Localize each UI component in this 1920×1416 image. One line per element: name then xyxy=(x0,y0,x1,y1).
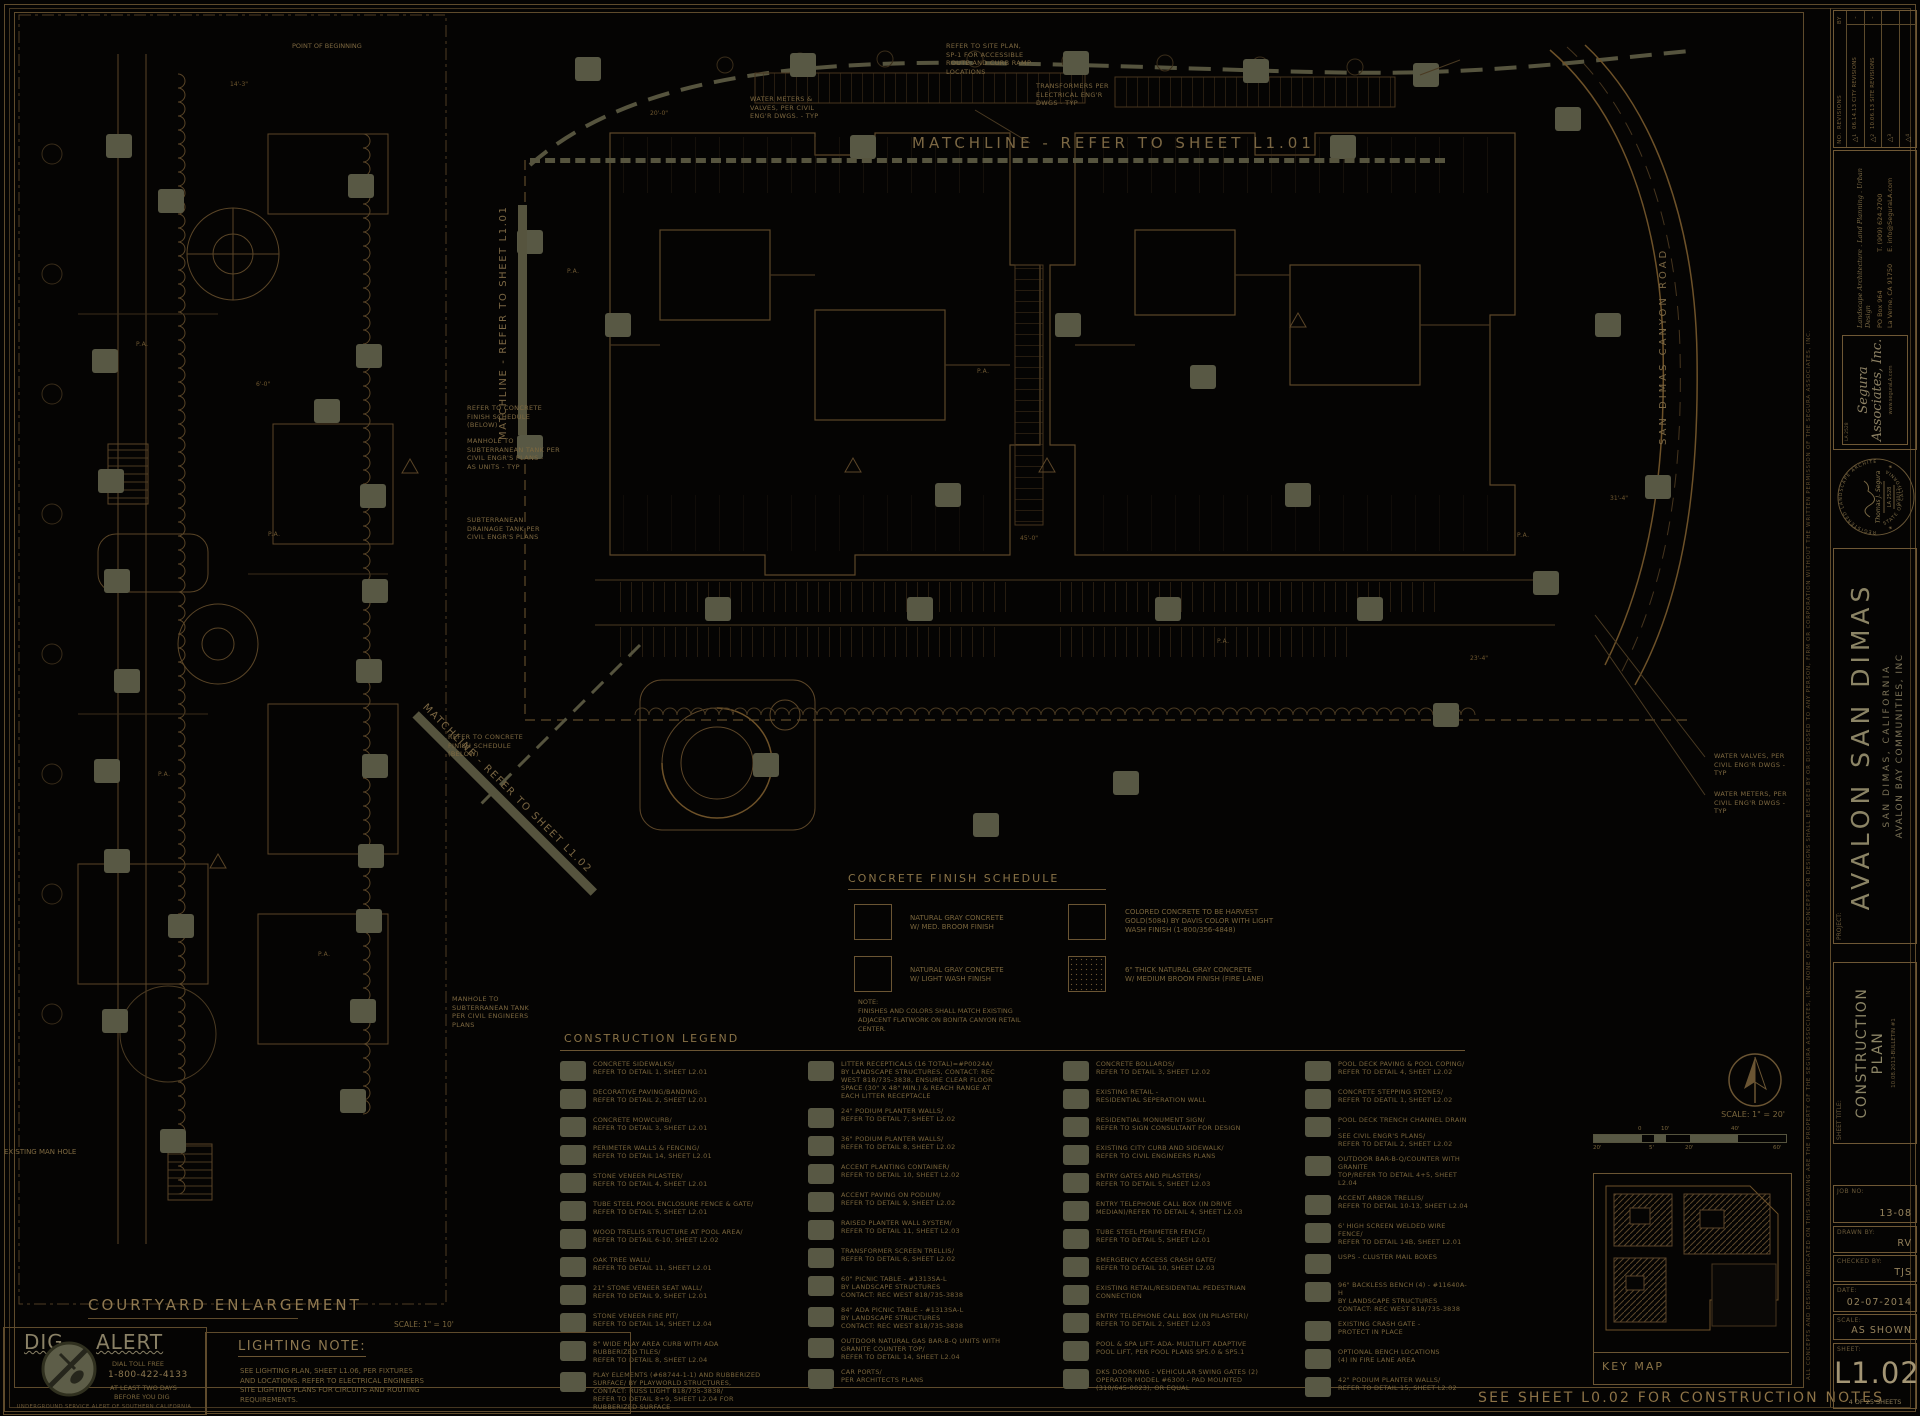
project-client: AVALON BAY COMMUNITIES, INC xyxy=(1895,654,1905,839)
firm-city: La Verne, CA 91750 xyxy=(1886,264,1894,328)
legend-item: OUTDOOR BAR-B-Q/COUNTER WITH GRANITE TOP… xyxy=(1305,1155,1470,1187)
legend-item-text: USPS - CLUSTER MAIL BOXES xyxy=(1338,1253,1437,1261)
keymap-scale-label: SCALE: 1" = 20' xyxy=(1655,1110,1785,1119)
courtyard-title: COURTYARD ENLARGEMENT xyxy=(88,1296,362,1314)
legend-item-text: 42" PODIUM PLANTER WALLS/ REFER TO DETAI… xyxy=(1338,1376,1457,1392)
legend-column-2: LITTER RECEPTICALS (16 TOTAL)=#P0024A/ B… xyxy=(808,1060,1058,1389)
sheet-title-label: SHEET TITLE: xyxy=(1836,1100,1843,1140)
legend-item: 21" STONE VENEER SEAT WALL/ REFER TO DET… xyxy=(560,1284,804,1305)
legend-item: STONE VENEER PILASTER/ REFER TO DETAIL 4… xyxy=(560,1172,804,1193)
firm-name: Segura Associates, Inc. xyxy=(1857,336,1885,444)
legend-item-text: EMERGENCY ACCESS CRASH GATE/ REFER TO DE… xyxy=(1096,1256,1216,1272)
annotation-water-meters-right: WATER METERS, PER CIVIL ENG'R DWGS - TYP xyxy=(1714,790,1787,816)
project-city: SAN DIMAS, CALIFORNIA xyxy=(1882,664,1892,827)
legend-swatch xyxy=(560,1089,586,1109)
legend-item-text: EXISTING RETAIL/RESIDENTIAL PEDESTRIAN C… xyxy=(1096,1284,1246,1300)
legend-swatch xyxy=(808,1307,834,1327)
annotation-subterranean-tank: SUBTERRANEAN DRAINAGE TANK PER CIVIL ENG… xyxy=(467,516,540,542)
annotation-water-meters-valves: WATER METERS & VALVES, PER CIVIL ENG'R D… xyxy=(750,95,818,121)
drawn-by-box: DRAWN BY: RV xyxy=(1833,1226,1917,1253)
finish-item: 6" THICK NATURAL GRAY CONCRETE W/ MEDIUM… xyxy=(1125,966,1264,984)
dimension-label: 14'-3" xyxy=(230,81,248,88)
legend-item: POOL DECK PAVING & POOL COPING/ REFER TO… xyxy=(1305,1060,1470,1081)
legend-item-text: TUBE STEEL PERIMETER FENCE/ REFER TO DET… xyxy=(1096,1228,1210,1244)
legend-swatch xyxy=(808,1369,834,1389)
legend-item: ACCENT ARBOR TRELLIS/ REFER TO DETAIL 10… xyxy=(1305,1194,1470,1215)
legend-item: OUTDOOR NATURAL GAS BAR-B-Q UNITS WITH G… xyxy=(808,1337,1058,1361)
revision-text: 06.14.13 CITY REVISIONS xyxy=(1852,25,1858,129)
legend-swatch xyxy=(1063,1285,1089,1305)
legend-item: EXISTING RETAIL/RESIDENTIAL PEDESTRIAN C… xyxy=(1063,1284,1301,1305)
date-box: DATE: 02-07-2014 xyxy=(1833,1284,1917,1312)
legend-item: 84" ADA PICNIC TABLE - #1313SA-L BY LAND… xyxy=(808,1306,1058,1330)
checked-by-value: TJS xyxy=(1894,1267,1912,1278)
revision-delta-icon: △ xyxy=(1851,137,1859,142)
legend-item: 60" PICNIC TABLE - #1313SA-L BY LANDSCAP… xyxy=(808,1275,1058,1299)
legend-item: ENTRY GATES AND PILASTERS/ REFER TO DETA… xyxy=(1063,1172,1301,1193)
firm-block: LA 2528 Segura Associates, Inc. www.segu… xyxy=(1833,150,1917,450)
legend-item-text: ACCENT PAVING ON PODIUM/ REFER TO DETAIL… xyxy=(841,1191,955,1207)
legend-item: POOL & SPA LIFT- ADA- MULTILIFT ADAPTIVE… xyxy=(1063,1340,1301,1361)
revision-delta-icon: △ xyxy=(1886,137,1894,142)
legend-swatch xyxy=(1305,1195,1331,1215)
legend-swatch xyxy=(1063,1145,1089,1165)
scale-bar-tick: 5' xyxy=(1649,1145,1654,1151)
legend-swatch xyxy=(808,1164,834,1184)
sheet-count: 4 OF 25 SHEETS xyxy=(1834,1398,1916,1406)
drawn-by-value: RV xyxy=(1897,1238,1912,1249)
legend-item: CONCRETE STEPPING STONES/ REFER TO DEATI… xyxy=(1305,1088,1470,1109)
sheet-number-label: SHEET: xyxy=(1837,1346,1861,1353)
legend-swatch xyxy=(1063,1201,1089,1221)
schedule-note: NOTE: FINISHES AND COLORS SHALL MATCH EX… xyxy=(858,998,1021,1034)
stamp-star-icon: ★ xyxy=(1888,464,1894,469)
revision-by xyxy=(1882,11,1899,25)
existing-manhole-label: EXISTING MAN HOLE xyxy=(4,1148,76,1156)
legend-item: 36" PODIUM PLANTER WALLS/ REFER TO DETAI… xyxy=(808,1135,1058,1156)
dig-alert-line1: DIAL TOLL FREE xyxy=(112,1360,164,1369)
stamp-date: 9/30/13 xyxy=(1896,488,1902,506)
legend-swatch xyxy=(1305,1321,1331,1341)
legend-swatch xyxy=(808,1248,834,1268)
project-block: PROJECT: AVALON SAN DIMAS SAN DIMAS, CAL… xyxy=(1833,548,1917,944)
lighting-note-box: LIGHTING NOTE: SEE LIGHTING PLAN, SHEET … xyxy=(205,1332,631,1414)
scale-bar-tick: 40' xyxy=(1731,1126,1740,1132)
job-number-value: 13-08 xyxy=(1879,1208,1912,1219)
legend-item-text: EXISTING CITY CURB AND SIDEWALK/ REFER T… xyxy=(1096,1144,1224,1160)
legend-item: OAK TREE WALL/ REFER TO DETAIL 11, SHEET… xyxy=(560,1256,804,1277)
legend-item-text: PERIMETER WALLS & FENCING/ REFER TO DETA… xyxy=(593,1144,712,1160)
legend-item-text: CONCRETE STEPPING STONES/ REFER TO DEATI… xyxy=(1338,1088,1452,1104)
dig-alert-word-alert: ALERT xyxy=(96,1330,163,1354)
key-map-box: KEY MAP xyxy=(1593,1173,1792,1385)
legend-swatch xyxy=(1305,1156,1331,1176)
legend-item: TUBE STEEL PERIMETER FENCE/ REFER TO DET… xyxy=(1063,1228,1301,1249)
dimension-label: 20'-0" xyxy=(650,110,668,117)
legend-item-text: CONCRETE MOWCURB/ REFER TO DETAIL 3, SHE… xyxy=(593,1116,707,1132)
annotation-accessible-route: REFER TO SITE PLAN, SP-1 FOR ACCESSIBLE … xyxy=(946,42,1031,76)
legend-item-text: POOL & SPA LIFT- ADA- MULTILIFT ADAPTIVE… xyxy=(1096,1340,1246,1356)
legend-item: 42" PODIUM PLANTER WALLS/ REFER TO DETAI… xyxy=(1305,1376,1470,1397)
north-arrow-icon xyxy=(1726,1051,1784,1109)
planting-area-label: P.A. xyxy=(136,341,149,348)
construction-legend: CONSTRUCTION LEGEND CONCRETE SIDEWALKS/ … xyxy=(560,1032,1468,1404)
date-value: 02-07-2014 xyxy=(1847,1297,1912,1308)
copyright-disclaimer: ALL CONCEPTS AND DESIGNS INDICATED ON TH… xyxy=(1806,150,1812,1380)
stamp-top-text: REGISTERED LANDSCAPE ARCHITECT xyxy=(1834,459,1877,539)
legend-swatch xyxy=(1305,1349,1331,1369)
legend-swatch xyxy=(560,1173,586,1193)
legend-swatch xyxy=(1063,1173,1089,1193)
scale-bar-tick: 0 xyxy=(1638,1126,1642,1132)
legend-item: PERIMETER WALLS & FENCING/ REFER TO DETA… xyxy=(560,1144,804,1165)
courtyard-scale: SCALE: 1" = 10' xyxy=(394,1320,454,1329)
legend-item: EXISTING CITY CURB AND SIDEWALK/ REFER T… xyxy=(1063,1144,1301,1165)
project-label: PROJECT: xyxy=(1836,913,1843,940)
legend-swatch xyxy=(1305,1282,1331,1302)
legend-item: CONCRETE SIDEWALKS/ REFER TO DETAIL 1, S… xyxy=(560,1060,804,1081)
revision-number: 3 xyxy=(1888,134,1893,137)
finish-item: NATURAL GRAY CONCRETE W/ LIGHT WASH FINI… xyxy=(910,966,1004,984)
stamp-star-icon: ★ xyxy=(1888,525,1894,530)
legend-swatch xyxy=(808,1136,834,1156)
firm-license-number: LA 2528 xyxy=(1845,422,1850,441)
legend-item-text: 96" BACKLESS BENCH (4) - #11640A-H BY LA… xyxy=(1338,1281,1470,1313)
dimension-label: 23'-4" xyxy=(1470,655,1488,662)
legend-item: USPS - CLUSTER MAIL BOXES xyxy=(1305,1253,1470,1274)
scale-label: SCALE: xyxy=(1837,1317,1861,1324)
revision-row: △4 xyxy=(1899,11,1917,147)
firm-address: PO Box 964 xyxy=(1876,264,1884,328)
planting-area-label: P.A. xyxy=(268,531,281,538)
scale-bar-tick: 60' xyxy=(1773,1145,1782,1151)
dimension-label: 45'-0" xyxy=(1020,535,1038,542)
revision-by: - xyxy=(1847,11,1864,25)
legend-column-4: POOL DECK PAVING & POOL COPING/ REFER TO… xyxy=(1305,1060,1470,1397)
dig-alert-phone: 1-800-422-4133 xyxy=(108,1370,188,1381)
legend-item-text: CONCRETE BOLLARDS/ REFER TO DETAIL 3, SH… xyxy=(1096,1060,1210,1076)
legend-swatch xyxy=(560,1201,586,1221)
dimension-label: 31'-4" xyxy=(1610,495,1628,502)
legend-item-text: ENTRY GATES AND PILASTERS/ REFER TO DETA… xyxy=(1096,1172,1210,1188)
planting-area-label: P.A. xyxy=(567,268,580,275)
legend-swatch xyxy=(808,1061,834,1081)
legend-item-text: 24" PODIUM PLANTER WALLS/ REFER TO DETAI… xyxy=(841,1107,955,1123)
legend-item-text: 84" ADA PICNIC TABLE - #1313SA-L BY LAND… xyxy=(841,1306,963,1330)
legend-item: WOOD TRELLIS STRUCTURE AT POOL AREA/ REF… xyxy=(560,1228,804,1249)
stamp-architect-name: Thomas J. Segura xyxy=(1875,470,1882,523)
scale-bar: 0 10' 40' 20' 5' 20' 60' xyxy=(1593,1126,1785,1154)
legend-item-text: CAR PORTS/ PER ARCHITECTS PLANS xyxy=(841,1368,924,1384)
legend-swatch xyxy=(1305,1223,1331,1243)
legend-item-text: EXISTING CRASH GATE - PROTECT IN PLACE xyxy=(1338,1320,1420,1336)
scale-bar-blocks xyxy=(1593,1134,1787,1143)
lighting-note-title: LIGHTING NOTE: xyxy=(238,1339,366,1357)
scale-box: SCALE: AS SHOWN xyxy=(1833,1314,1917,1340)
legend-swatch xyxy=(560,1257,586,1277)
annotation-transformers: TRANSFORMERS PER ELECTRICAL ENG'R DWGS -… xyxy=(1036,82,1109,108)
legend-swatch xyxy=(1063,1229,1089,1249)
legend-item: LITTER RECEPTICALS (16 TOTAL)=#P0024A/ B… xyxy=(808,1060,1058,1100)
legend-item-text: DECORATIVE PAVING/BANDING: REFER TO DETA… xyxy=(593,1088,707,1104)
legend-item-text: 21" STONE VENEER SEAT WALL/ REFER TO DET… xyxy=(593,1284,707,1300)
revision-by: - xyxy=(1865,11,1882,25)
courtyard-enlargement-panel: P.A. P.A. P.A. P.A. 14'-3" 6'-0" xyxy=(18,14,448,1306)
legend-item-text: 60" PICNIC TABLE - #1313SA-L BY LANDSCAP… xyxy=(841,1275,963,1299)
job-number-label: JOB NO: xyxy=(1837,1188,1864,1195)
matchline-top-dash xyxy=(530,158,1445,163)
dimension-label: 6'-0" xyxy=(256,381,270,388)
lighting-note-body: SEE LIGHTING PLAN, SHEET L1.06, PER FIXT… xyxy=(240,1367,424,1405)
dig-alert-line3: BEFORE YOU DIG xyxy=(114,1393,170,1402)
revisions-col-title: REVISIONS xyxy=(1837,24,1843,129)
date-label: DATE: xyxy=(1837,1287,1857,1294)
legend-item: CAR PORTS/ PER ARCHITECTS PLANS xyxy=(808,1368,1058,1389)
legend-item-text: POOL DECK TRENCH CHANNEL DRAIN - SEE CIV… xyxy=(1338,1116,1470,1148)
planting-area-label: P.A. xyxy=(318,951,331,958)
sheet-number: L1.02 xyxy=(1834,1356,1916,1390)
job-number-box: JOB NO: 13-08 xyxy=(1833,1185,1917,1223)
legend-swatch xyxy=(1305,1061,1331,1081)
bottom-reference-note: SEE SHEET L0.02 FOR CONSTRUCTION NOTES xyxy=(1478,1390,1884,1406)
legend-item: ENTRY TELEPHONE CALL BOX (IN PILASTER)/ … xyxy=(1063,1312,1301,1333)
scale-bar-tick: 20' xyxy=(1685,1145,1694,1151)
legend-item: ENTRY TELEPHONE CALL BOX (IN DRIVE MEDIA… xyxy=(1063,1200,1301,1221)
key-map-drawing xyxy=(1600,1180,1785,1340)
planting-area-label: P.A. xyxy=(1217,638,1230,645)
sheet-title-block: SHEET TITLE: CONSTRUCTION PLAN 10.08.201… xyxy=(1833,962,1917,1144)
legend-item-text: OPTIONAL BENCH LOCATIONS (4) IN FIRE LAN… xyxy=(1338,1348,1440,1364)
keymap-label: KEY MAP xyxy=(1602,1360,1664,1373)
legend-swatch xyxy=(808,1220,834,1240)
legend-item-text: CONCRETE SIDEWALKS/ REFER TO DETAIL 1, S… xyxy=(593,1060,707,1076)
legend-swatch xyxy=(1063,1313,1089,1333)
legend-column-3: CONCRETE BOLLARDS/ REFER TO DETAIL 3, SH… xyxy=(1063,1060,1301,1392)
scale-bar-tick: 20' xyxy=(1593,1145,1602,1151)
legend-swatch xyxy=(1305,1089,1331,1109)
legend-item: CONCRETE MOWCURB/ REFER TO DETAIL 3, SHE… xyxy=(560,1116,804,1137)
revision-text: 10.06.13 SITE REVISIONS xyxy=(1870,25,1876,129)
legend-item: 96" BACKLESS BENCH (4) - #11640A-H BY LA… xyxy=(1305,1281,1470,1313)
annotation-manhole-lower: MANHOLE TO SUBTERRANEAN TANK PER CIVIL E… xyxy=(452,995,529,1029)
legend-item-text: EXISTING RETAIL - RESIDENTIAL SEPERATION… xyxy=(1096,1088,1206,1104)
legend-item: 24" PODIUM PLANTER WALLS/ REFER TO DETAI… xyxy=(808,1107,1058,1128)
legend-item: EXISTING CRASH GATE - PROTECT IN PLACE xyxy=(1305,1320,1470,1341)
legend-item-text: ENTRY TELEPHONE CALL BOX (IN DRIVE MEDIA… xyxy=(1096,1200,1243,1216)
titleblock-divider xyxy=(1830,8,1831,1407)
legend-item-text: ACCENT PLANTING CONTAINER/ REFER TO DETA… xyxy=(841,1163,960,1179)
matchline-top-label: MATCHLINE - REFER TO SHEET L1.01 xyxy=(912,134,1315,152)
legend-swatch xyxy=(560,1145,586,1165)
legend-item: DECORATIVE PAVING/BANDING: REFER TO DETA… xyxy=(560,1088,804,1109)
legend-item: EMERGENCY ACCESS CRASH GATE/ REFER TO DE… xyxy=(1063,1256,1301,1277)
finish-swatch-colored xyxy=(1068,904,1106,940)
legend-item-text: POOL DECK PAVING & POOL COPING/ REFER TO… xyxy=(1338,1060,1464,1076)
courtyard-plan-drawing: P.A. P.A. P.A. P.A. 14'-3" 6'-0" xyxy=(18,14,448,1306)
stamp-license: LA 2528 xyxy=(1887,487,1893,508)
legend-item-text: OUTDOOR NATURAL GAS BAR-B-Q UNITS WITH G… xyxy=(841,1337,1000,1361)
legend-swatch xyxy=(560,1061,586,1081)
legend-item-text: STONE VENEER PILASTER/ REFER TO DETAIL 4… xyxy=(593,1172,707,1188)
legend-item-text: STONE VENEER FIRE PIT/ REFER TO DETAIL 1… xyxy=(593,1312,712,1328)
legend-item: ACCENT PAVING ON PODIUM/ REFER TO DETAIL… xyxy=(808,1191,1058,1212)
firm-email: E. info@SeguraLA.com xyxy=(1886,178,1894,252)
legend-swatch xyxy=(1063,1117,1089,1137)
sheet-title-line1: CONSTRUCTION xyxy=(1854,988,1870,1119)
legend-swatch xyxy=(808,1338,834,1358)
legend-swatch xyxy=(560,1313,586,1333)
legend-item-text: 36" PODIUM PLANTER WALLS/ REFER TO DETAI… xyxy=(841,1135,955,1151)
concrete-finish-schedule: CONCRETE FINISH SCHEDULE NATURAL GRAY CO… xyxy=(848,872,1478,1042)
finish-swatch-broom xyxy=(854,904,892,940)
revision-number: 2 xyxy=(1871,134,1876,137)
firm-tagline: Landscape Architecture . Land Planning .… xyxy=(1856,155,1872,328)
dig-alert-line2: AT LEAST TWO DAYS xyxy=(110,1384,177,1393)
revision-row: △2 10.06.13 SITE REVISIONS - xyxy=(1864,11,1882,147)
legend-item-text: RAISED PLANTER WALL SYSTEM/ REFER TO DET… xyxy=(841,1219,960,1235)
legend-item: RESIDENTIAL MONUMENT SIGN/ REFER TO SIGN… xyxy=(1063,1116,1301,1137)
legend-swatch xyxy=(808,1192,834,1212)
legend-item: ACCENT PLANTING CONTAINER/ REFER TO DETA… xyxy=(808,1163,1058,1184)
scale-value: AS SHOWN xyxy=(1851,1325,1912,1336)
legend-swatch xyxy=(1305,1377,1331,1397)
road-name-label: SAN DIMAS CANYON ROAD xyxy=(1658,245,1669,445)
legend-title: CONSTRUCTION LEGEND xyxy=(564,1032,739,1045)
project-name: AVALON SAN DIMAS xyxy=(1846,582,1875,911)
legend-item-text: WOOD TRELLIS STRUCTURE AT POOL AREA/ REF… xyxy=(593,1228,743,1244)
legend-item-text: DKS DOORKING - VEHICULAR SWING GATES (2)… xyxy=(1096,1368,1258,1392)
planting-area-label: P.A. xyxy=(977,368,990,375)
legend-item-text: TUBE STEEL POOL ENCLOSURE FENCE & GATE/ … xyxy=(593,1200,753,1216)
revision-number: 4 xyxy=(1906,134,1911,137)
dig-alert-box: DIG ALERT DIAL TOLL FREE 1-800-422-4133 … xyxy=(3,1327,207,1415)
annotation-water-valves-right: WATER VALVES, PER CIVIL ENG'R DWGS - TYP xyxy=(1714,752,1785,778)
finish-item: NATURAL GRAY CONCRETE W/ MED. BROOM FINI… xyxy=(910,914,1004,932)
legend-swatch xyxy=(1305,1117,1331,1137)
sheet-title-bulletin: 10.08.2013-BULLETIN #1 xyxy=(1891,1018,1897,1088)
legend-item-text: 6' HIGH SCREEN WELDED WIRE FENCE/ REFER … xyxy=(1338,1222,1470,1246)
legend-item: POOL DECK TRENCH CHANNEL DRAIN - SEE CIV… xyxy=(1305,1116,1470,1148)
legend-item-text: RESIDENTIAL MONUMENT SIGN/ REFER TO SIGN… xyxy=(1096,1116,1241,1132)
legend-swatch xyxy=(560,1285,586,1305)
sheet-number-box: SHEET: L1.02 4 OF 25 SHEETS xyxy=(1833,1343,1917,1409)
dig-alert-footer: UNDERGROUND SERVICE ALERT OF SOUTHERN CA… xyxy=(6,1404,202,1410)
revision-by xyxy=(1900,11,1917,25)
legend-item: RAISED PLANTER WALL SYSTEM/ REFER TO DET… xyxy=(808,1219,1058,1240)
sheet-title-line2: PLAN xyxy=(1870,1032,1886,1075)
legend-swatch xyxy=(1305,1254,1331,1274)
scale-bar-tick: 10' xyxy=(1661,1126,1670,1132)
schedule-title: CONCRETE FINISH SCHEDULE xyxy=(848,872,1106,890)
finish-swatch-wash xyxy=(854,956,892,992)
annotation-manhole-upper: MANHOLE TO SUBTERRANEAN TANK PER CIVIL E… xyxy=(467,437,560,471)
legend-swatch xyxy=(1063,1061,1089,1081)
revision-row: △1 06.14.13 CITY REVISIONS - xyxy=(1846,11,1864,147)
drawing-sheet: P.A. P.A. P.A. P.A. 14'-3" 6'-0" POINT O… xyxy=(0,0,1920,1416)
finish-swatch-firelane xyxy=(1068,956,1106,992)
legend-item-text: ENTRY TELEPHONE CALL BOX (IN PILASTER)/ … xyxy=(1096,1312,1248,1328)
legend-item-text: OUTDOOR BAR-B-Q/COUNTER WITH GRANITE TOP… xyxy=(1338,1155,1470,1187)
legend-swatch xyxy=(560,1117,586,1137)
legend-item: OPTIONAL BENCH LOCATIONS (4) IN FIRE LAN… xyxy=(1305,1348,1470,1369)
keymap-divider xyxy=(1594,1352,1789,1353)
firm-website: www.seguraLA.com xyxy=(1888,365,1894,414)
matchline-left-bar xyxy=(518,205,527,435)
svg-text:REGISTERED LANDSCAPE ARCHITECT: REGISTERED LANDSCAPE ARCHITECT xyxy=(1834,459,1877,539)
legend-swatch xyxy=(808,1276,834,1296)
revisions-col-no: NO. xyxy=(1837,129,1843,147)
revision-number: 1 xyxy=(1853,134,1858,137)
legend-item: STONE VENEER FIRE PIT/ REFER TO DETAIL 1… xyxy=(560,1312,804,1333)
legend-item: EXISTING RETAIL - RESIDENTIAL SEPERATION… xyxy=(1063,1088,1301,1109)
landscape-architect-stamp: REGISTERED LANDSCAPE ARCHITECT STATE OF … xyxy=(1834,455,1918,539)
legend-item: TRANSFORMER SCREEN TRELLIS/ REFER TO DET… xyxy=(808,1247,1058,1268)
checked-by-label: CHECKED BY: xyxy=(1837,1258,1882,1265)
legend-item-text: OAK TREE WALL/ REFER TO DETAIL 11, SHEET… xyxy=(593,1256,712,1272)
legend-swatch xyxy=(1063,1089,1089,1109)
legend-underline xyxy=(560,1050,1465,1051)
legend-item: DKS DOORKING - VEHICULAR SWING GATES (2)… xyxy=(1063,1368,1301,1392)
point-of-beginning-label: POINT OF BEGINNING xyxy=(292,42,362,50)
legend-swatch xyxy=(560,1229,586,1249)
legend-item-text: LITTER RECEPTICALS (16 TOTAL)=#P0024A/ B… xyxy=(841,1060,995,1100)
legend-item-text: ACCENT ARBOR TRELLIS/ REFER TO DETAIL 10… xyxy=(1338,1194,1468,1210)
checked-by-box: CHECKED BY: TJS xyxy=(1833,1255,1917,1282)
planting-area-label: P.A. xyxy=(158,771,171,778)
revisions-col-by: BY xyxy=(1837,11,1843,24)
dig-alert-logo-icon xyxy=(40,1340,98,1398)
legend-item-text: TRANSFORMER SCREEN TRELLIS/ REFER TO DET… xyxy=(841,1247,955,1263)
legend-swatch xyxy=(1063,1257,1089,1277)
legend-item: 6' HIGH SCREEN WELDED WIRE FENCE/ REFER … xyxy=(1305,1222,1470,1246)
revisions-block: NO.REVISIONSBY △1 06.14.13 CITY REVISION… xyxy=(1833,10,1917,148)
annotation-finish-schedule-upper: REFER TO CONCRETE FINISH SCHEDULE (BELOW… xyxy=(467,404,542,430)
drawn-by-label: DRAWN BY: xyxy=(1837,1229,1875,1236)
legend-swatch xyxy=(1063,1369,1089,1389)
annotation-finish-schedule-lower: REFER TO CONCRETE FINISH SCHEDULE (BELOW… xyxy=(448,733,523,759)
firm-phone: T. (909) 624-2700 xyxy=(1876,178,1884,252)
legend-item: TUBE STEEL POOL ENCLOSURE FENCE & GATE/ … xyxy=(560,1200,804,1221)
legend-item: CONCRETE BOLLARDS/ REFER TO DETAIL 3, SH… xyxy=(1063,1060,1301,1081)
planting-area-label: P.A. xyxy=(1517,532,1530,539)
revision-delta-icon: △ xyxy=(1869,137,1877,142)
courtyard-title-underline xyxy=(88,1318,298,1319)
finish-item: COLORED CONCRETE TO BE HARVEST GOLD(5084… xyxy=(1125,908,1273,935)
legend-swatch xyxy=(808,1108,834,1128)
legend-swatch xyxy=(1063,1341,1089,1361)
revision-delta-icon: △ xyxy=(1904,137,1912,142)
revision-row: △3 xyxy=(1881,11,1899,147)
